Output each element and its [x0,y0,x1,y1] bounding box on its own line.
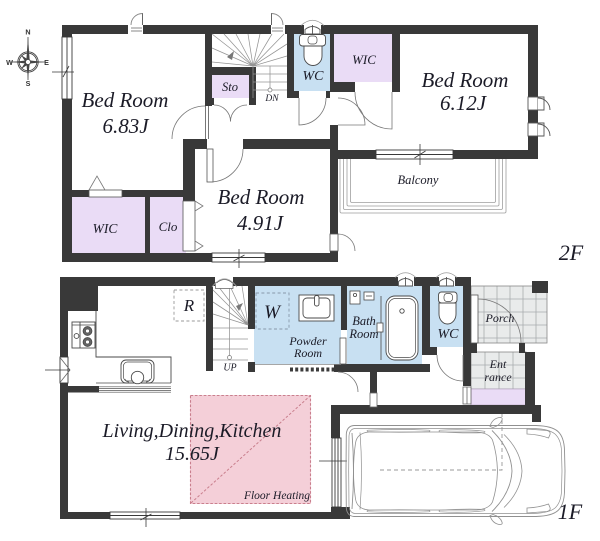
svg-text:Bed Room: Bed Room [218,185,305,209]
svg-text:4.91J: 4.91J [237,211,285,235]
svg-text:6.83J: 6.83J [102,114,150,138]
svg-text:W: W [6,58,13,67]
svg-text:DN: DN [264,94,279,104]
svg-text:2F: 2F [559,240,584,265]
svg-text:Living,Dining,Kitchen: Living,Dining,Kitchen [102,420,282,442]
svg-text:Room: Room [293,346,322,360]
svg-text:W: W [264,302,282,323]
svg-text:Balcony: Balcony [398,173,439,187]
svg-text:Bed Room: Bed Room [422,68,509,92]
svg-text:Clo: Clo [159,219,178,234]
svg-text:6.12J: 6.12J [440,91,488,115]
svg-text:R: R [183,296,195,315]
svg-text:15.65J: 15.65J [165,443,220,465]
svg-text:WC: WC [303,69,325,84]
svg-text:E: E [44,58,49,67]
svg-text:WIC: WIC [93,221,119,236]
svg-text:Room: Room [348,327,378,341]
svg-text:1F: 1F [558,499,583,524]
svg-text:Floor Heating: Floor Heating [243,490,310,502]
svg-text:N: N [25,28,30,37]
svg-text:rance: rance [484,370,512,384]
svg-text:UP: UP [223,363,236,374]
svg-text:Sto: Sto [222,80,238,94]
svg-text:Bed Room: Bed Room [82,88,169,112]
svg-text:S: S [26,79,31,88]
svg-text:WIC: WIC [352,52,376,67]
svg-text:Ent: Ent [489,357,507,371]
svg-text:Porch: Porch [485,311,515,325]
svg-text:WC: WC [438,327,460,342]
svg-text:Bath: Bath [352,314,376,328]
